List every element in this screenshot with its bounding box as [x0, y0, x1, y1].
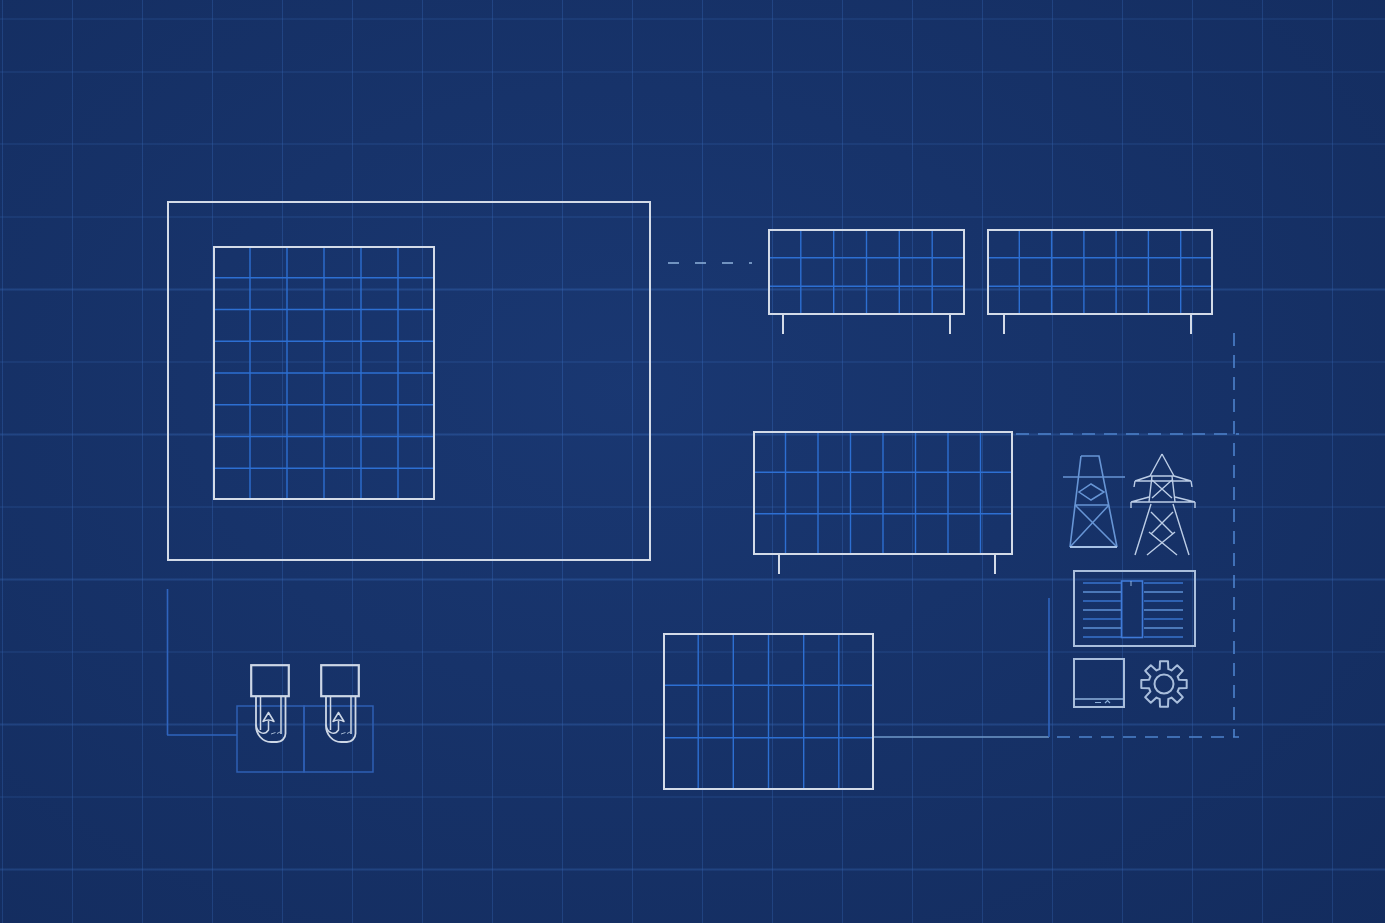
- transmission-tower-icon: [1062, 452, 1126, 554]
- inverter-unit-icon: [1073, 658, 1125, 708]
- gear: [1140, 660, 1188, 708]
- panel-top-right: [987, 229, 1213, 315]
- transmission-tower-icon: [1130, 450, 1196, 557]
- solar-array-grid: [768, 229, 965, 336]
- ev-charger-1: [250, 664, 290, 746]
- solar-array-grid: [753, 431, 1013, 576]
- panel-bottom: [663, 633, 874, 790]
- transformer-icon: [1073, 570, 1196, 647]
- gear-icon: [1140, 660, 1188, 708]
- blueprint-canvas: [0, 0, 1385, 923]
- ev-charger-icon: [250, 664, 290, 746]
- ev-charger-2: [320, 664, 360, 746]
- main-array: [213, 246, 435, 500]
- ev-charger-icon: [320, 664, 360, 746]
- transmission-tower-b: [1130, 450, 1196, 557]
- transmission-tower-a: [1062, 452, 1126, 554]
- panel-mid: [753, 431, 1013, 555]
- solar-array-grid: [213, 246, 435, 502]
- solar-array-grid: [987, 229, 1213, 336]
- panel-top-left: [768, 229, 965, 315]
- solar-array-grid: [663, 633, 874, 792]
- panel-frame: [988, 230, 1212, 314]
- control-unit: [1073, 658, 1125, 708]
- transformer: [1073, 570, 1196, 647]
